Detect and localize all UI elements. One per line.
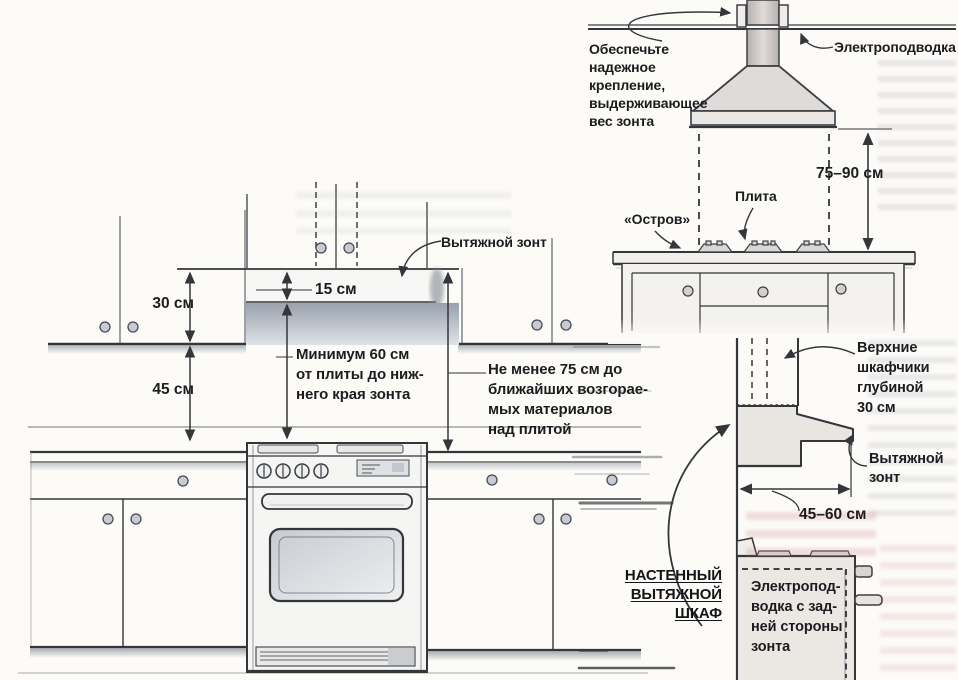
label-island: «Остров»: [624, 210, 690, 228]
label-mounting-note: Обеспечьте надежное крепление, выдержива…: [589, 40, 707, 130]
illustration-page: 30 см 45 см 15 см Вытяжной зонт Минимум …: [0, 0, 958, 680]
hood-cabinet: [247, 182, 427, 268]
label-dim-30cm: 30 см: [130, 295, 194, 313]
label-dim-45cm: 45 см: [130, 381, 194, 399]
label-min-60cm-note: Минимум 60 см от плиты до ниж- него края…: [296, 345, 424, 405]
label-power-supply: Электроподводка: [834, 38, 956, 56]
duct-guides: [752, 338, 767, 402]
label-dim-75-90cm: 75–90 см: [816, 165, 884, 183]
label-power-back-note: Электропод- водка с зад- ней стороны зон…: [751, 577, 842, 657]
label-wall-hood-heading: НАСТЕННЫЙ ВЫТЯЖНОЙ ШКАФ: [600, 566, 722, 623]
label-stove: Плита: [735, 187, 777, 205]
label-upper-cabinets: Верхние шкафчики глубиной 30 см: [857, 338, 929, 418]
ceiling-duct: [737, 0, 788, 66]
range-hood: [177, 268, 459, 345]
label-dim-45-60cm: 45–60 см: [799, 506, 867, 524]
wall-hood-profile: [737, 406, 853, 466]
oven-handle: [262, 494, 412, 509]
label-hood-side: Вытяжной зонт: [869, 450, 943, 488]
oven-window: [270, 529, 403, 601]
label-min-75cm-note: Не менее 75 см до ближайших возгорае- мы…: [488, 360, 648, 440]
stove: [247, 443, 427, 672]
island-cooktop: [698, 241, 830, 252]
label-hood-front: Вытяжной зонт: [441, 233, 547, 251]
island-cabinet: [608, 264, 928, 344]
label-dim-15cm: 15 см: [315, 281, 357, 299]
island-hood: [689, 66, 837, 127]
